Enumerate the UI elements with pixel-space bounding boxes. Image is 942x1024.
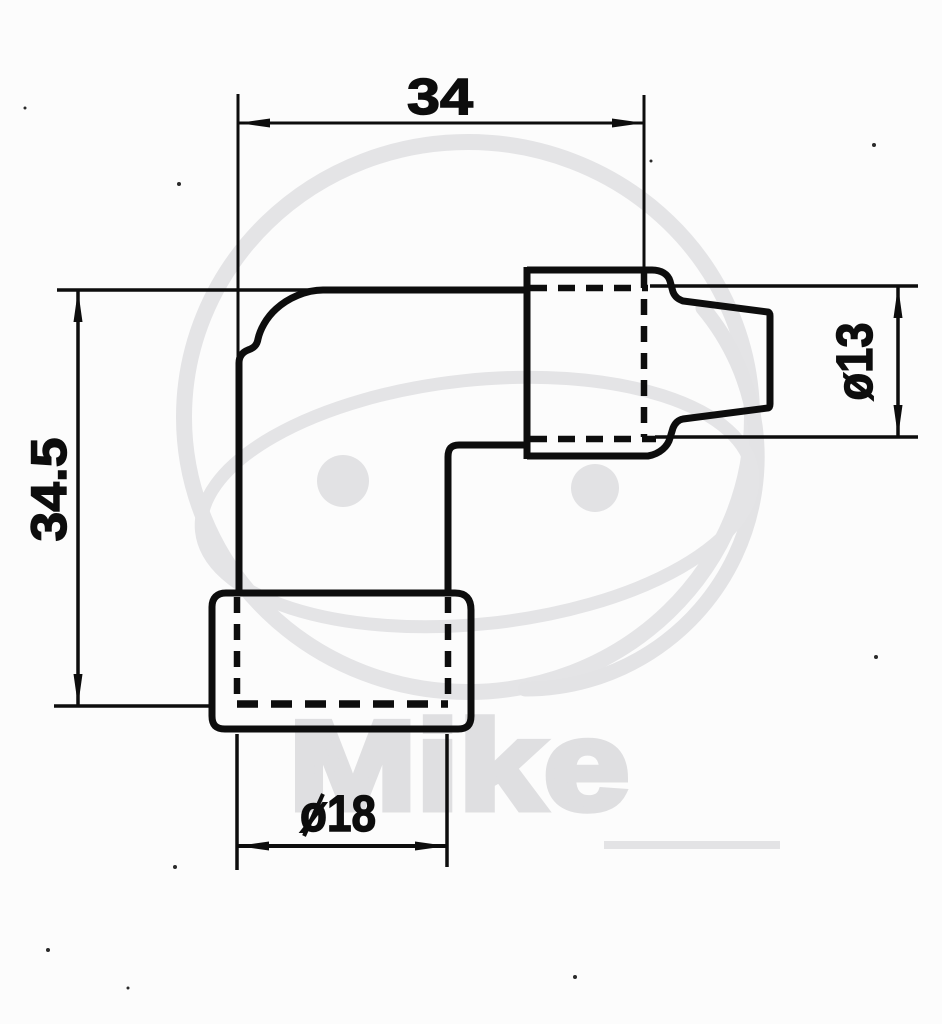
svg-text:ø18: ø18 (300, 785, 376, 842)
svg-text:34.5: 34.5 (21, 438, 77, 542)
svg-text:ø13: ø13 (826, 323, 883, 401)
svg-text:34: 34 (407, 68, 474, 125)
